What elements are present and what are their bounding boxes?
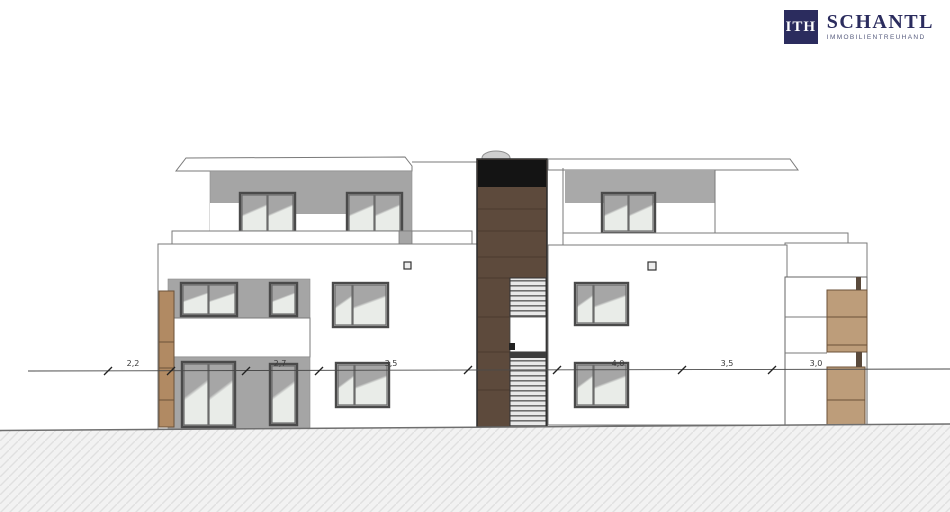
penthouse-wall-recess: [210, 203, 240, 232]
stairwell-glazing-lower: [510, 352, 546, 427]
glass-pane: [375, 195, 400, 231]
glass-pane: [353, 285, 386, 325]
glass-pane: [272, 366, 295, 423]
penthouse-wall-recess: [295, 214, 347, 232]
louver-support: [856, 277, 861, 290]
glass-pane: [349, 195, 374, 231]
dimension-label: 4,0: [612, 359, 625, 368]
glass-pane: [242, 195, 267, 231]
company-logo: ITH SCHANTL IMMOBILIENTREUHAND: [784, 10, 934, 44]
stairwell-landing: [510, 317, 546, 352]
glass-pane: [209, 285, 235, 314]
parapet-corner-block: [399, 231, 412, 244]
dimension-label: 2,7: [274, 359, 287, 368]
stair-tower: [477, 151, 547, 427]
glass-pane: [577, 285, 593, 323]
upper-floor-window: [181, 283, 237, 316]
ground-floor-door: [182, 362, 235, 427]
terrace-parapet: [172, 231, 472, 244]
penthouse-terrace-door: [240, 193, 295, 233]
ith-monogram-logo: ITH: [784, 10, 818, 44]
glass-pane: [594, 365, 626, 405]
middle-upper-window: [333, 283, 388, 327]
loggia-upper-band: [785, 243, 867, 277]
balcony-parapet-band: [160, 318, 310, 357]
louver-support: [856, 352, 862, 367]
dimension-label: 3,5: [385, 359, 398, 368]
right-penthouse-roof: [548, 159, 798, 170]
logo-text: SCHANTL IMMOBILIENTREUHAND: [827, 12, 934, 42]
upper-floor-window: [270, 283, 297, 316]
facade-vent: [404, 262, 411, 269]
glass-pane: [272, 285, 295, 314]
elevation-drawing-page: 2,2 2,7 3,5 4,0 3,5 3,0 ITH SCHANTL IMMO…: [0, 0, 950, 512]
glass-pane: [209, 364, 233, 425]
dimension-label: 3,0: [810, 359, 823, 368]
tower-black-attic-band: [478, 160, 546, 187]
logo-company-name: SCHANTL: [827, 12, 934, 33]
building-elevation-svg: 2,2 2,7 3,5 4,0 3,5 3,0: [0, 0, 950, 512]
glass-pane: [338, 365, 354, 405]
stairwell-glazing-upper: [510, 278, 546, 317]
logo-subtitle: IMMOBILIENTREUHAND: [827, 35, 934, 42]
glass-pane: [594, 285, 626, 323]
left-building: [158, 157, 477, 429]
ground-hatch: [0, 424, 950, 512]
dimension-label: 2,2: [127, 359, 140, 368]
louver-panel-lower: [827, 367, 865, 425]
glass-pane: [604, 195, 628, 231]
glass-pane: [184, 364, 208, 425]
glass-pane: [268, 195, 293, 231]
upper-floor-window: [575, 283, 628, 325]
glass-pane: [183, 285, 208, 314]
dimension-label: 3,5: [721, 359, 734, 368]
penthouse-terrace-door: [347, 193, 402, 233]
ground-floor-door: [270, 364, 297, 425]
facade-vent: [648, 262, 656, 270]
stair-handrail-mark: [509, 343, 515, 350]
glass-pane: [355, 365, 387, 405]
ground: [0, 424, 950, 512]
right-building: [548, 159, 867, 425]
penthouse-terrace-door: [602, 193, 655, 233]
stair-flight-edge: [510, 352, 546, 358]
glass-pane: [629, 195, 653, 231]
middle-lower-window: [336, 363, 389, 407]
louver-panel-upper: [827, 290, 867, 352]
glass-pane: [335, 285, 352, 325]
glass-pane: [577, 365, 593, 405]
left-penthouse-roof: [176, 157, 412, 171]
entrance-wood-pillar: [159, 291, 174, 427]
